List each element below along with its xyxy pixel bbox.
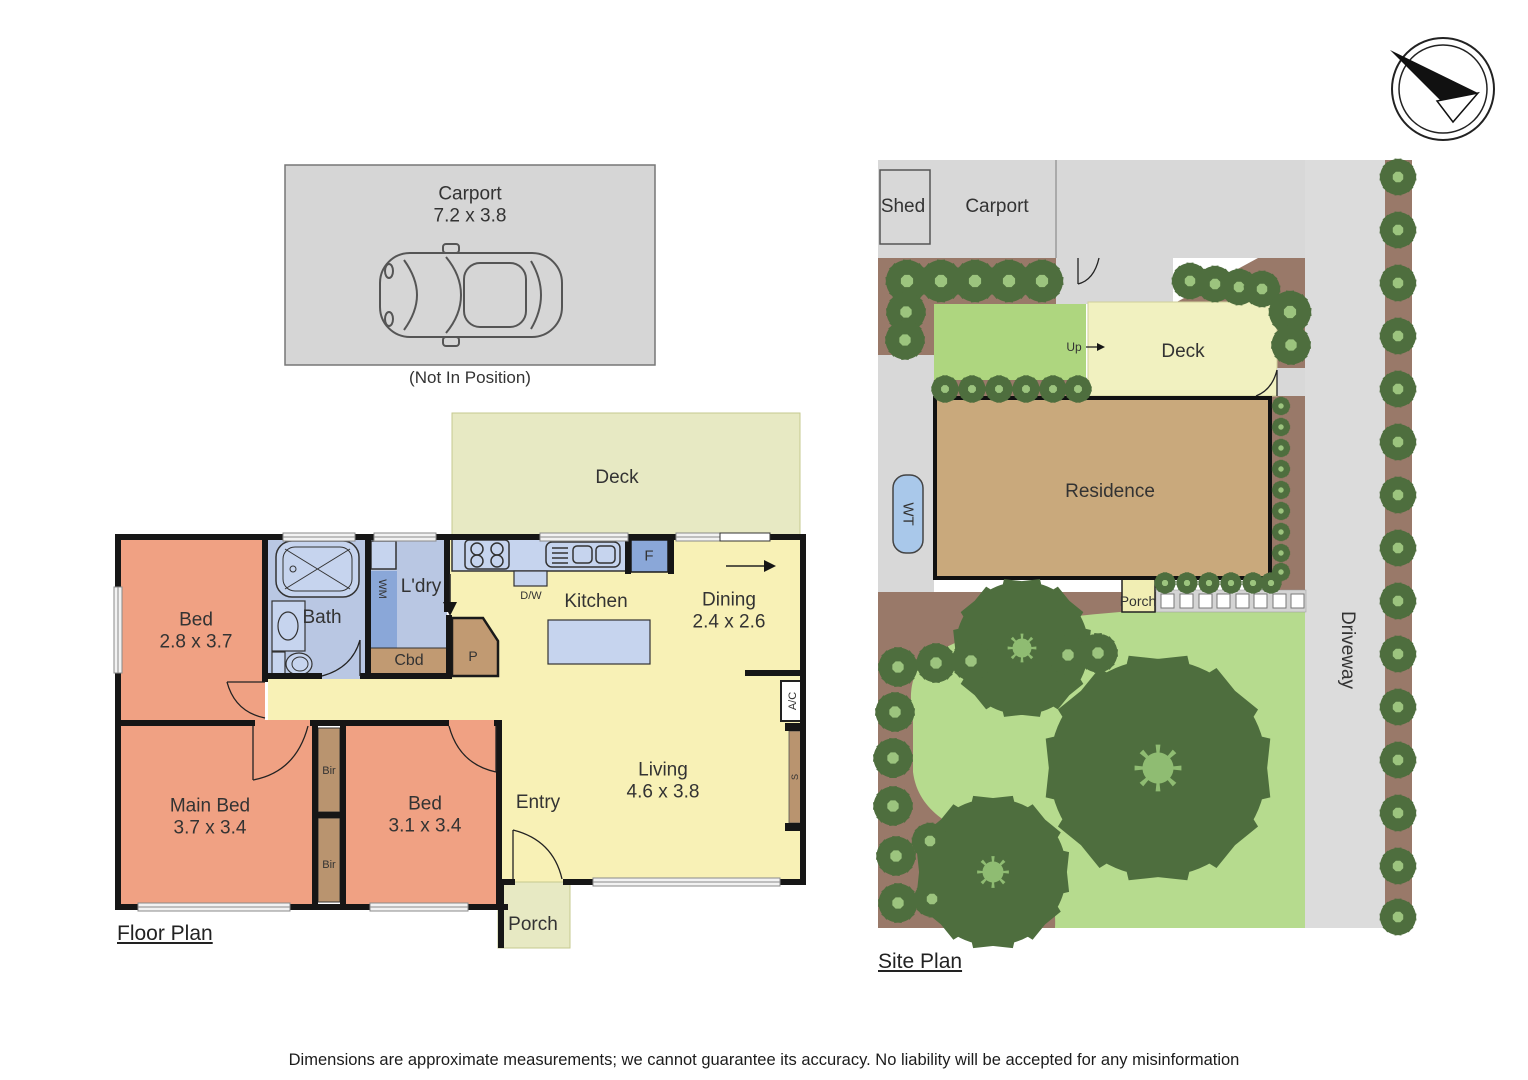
sp-walkway	[1056, 258, 1173, 304]
site-label-up: Up	[1066, 340, 1081, 354]
label-pantry: P	[468, 648, 477, 664]
label-bir-bottom: Bir	[322, 859, 335, 871]
room-label-living: Living 4.6 x 3.8	[627, 760, 700, 805]
island-bench	[548, 620, 650, 664]
site-label-shed: Shed	[881, 196, 925, 218]
carport-diagram-name: Carport	[438, 184, 501, 206]
laundry-trough-icon	[371, 541, 396, 569]
room-label-kitchen: Kitchen	[564, 591, 627, 613]
vanity-icon	[272, 601, 305, 651]
site-label-deck: Deck	[1161, 341, 1204, 363]
carport-note: (Not In Position)	[409, 368, 531, 388]
label-bir-top: Bir	[322, 765, 335, 777]
site-label-carport: Carport	[965, 196, 1028, 218]
carport-diagram-label: Carport 7.2 x 3.8	[434, 184, 507, 229]
tree-icon	[1096, 706, 1219, 829]
room-label-laundry: L'dry	[401, 576, 442, 598]
carport-diagram-size: 7.2 x 3.8	[434, 206, 507, 228]
toilet-icon	[272, 652, 312, 676]
site-plan-title: Site Plan	[878, 950, 962, 974]
room-label-bed2: Bed 3.1 x 3.4	[389, 794, 462, 839]
site-label-porch: Porch	[1120, 593, 1157, 609]
tree-icon	[984, 610, 1060, 686]
site-label-water-tank: WT	[900, 502, 917, 525]
disclaimer-text: Dimensions are approximate measurements;…	[0, 1051, 1528, 1070]
floor-plan-title: Floor Plan	[117, 922, 213, 946]
label-fridge: F	[644, 548, 653, 565]
driveway-area	[1305, 160, 1385, 928]
room-label-dining: Dining 2.4 x 2.6	[693, 590, 766, 635]
label-dishwasher: D/W	[520, 590, 541, 602]
compass-icon	[1390, 38, 1494, 140]
room-label-fp-porch: Porch	[508, 914, 558, 936]
room-label-fp-deck: Deck	[595, 467, 638, 489]
sp-deck-landing	[1277, 368, 1305, 396]
fp-hall-floor	[268, 676, 806, 726]
sp-top-paving	[878, 160, 1305, 258]
dishwasher-box	[514, 571, 547, 586]
room-label-bath: Bath	[302, 607, 341, 629]
site-label-residence: Residence	[1065, 481, 1155, 503]
room-label-bed1: Bed 2.8 x 3.7	[160, 610, 233, 655]
room-label-entry: Entry	[516, 792, 560, 814]
label-store: S	[790, 774, 800, 780]
label-washing-machine: WM	[376, 579, 388, 599]
room-label-main-bed: Main Bed 3.7 x 3.4	[170, 796, 250, 841]
bathtub-icon	[276, 541, 359, 597]
sp-left-paving	[878, 355, 934, 592]
plan-drawing	[0, 0, 1528, 1080]
label-cupboard: Cbd	[394, 652, 423, 670]
sp-lawn-upper	[934, 304, 1086, 380]
site-plan-drawing	[878, 160, 1412, 929]
label-air-con: A/C	[787, 692, 799, 710]
floor-plan-drawing	[114, 413, 806, 948]
tree-icon	[951, 830, 1035, 914]
floorplan-page: Carport 7.2 x 3.8 (Not In Position) Deck…	[0, 0, 1528, 1080]
site-label-driveway: Driveway	[1336, 611, 1358, 689]
